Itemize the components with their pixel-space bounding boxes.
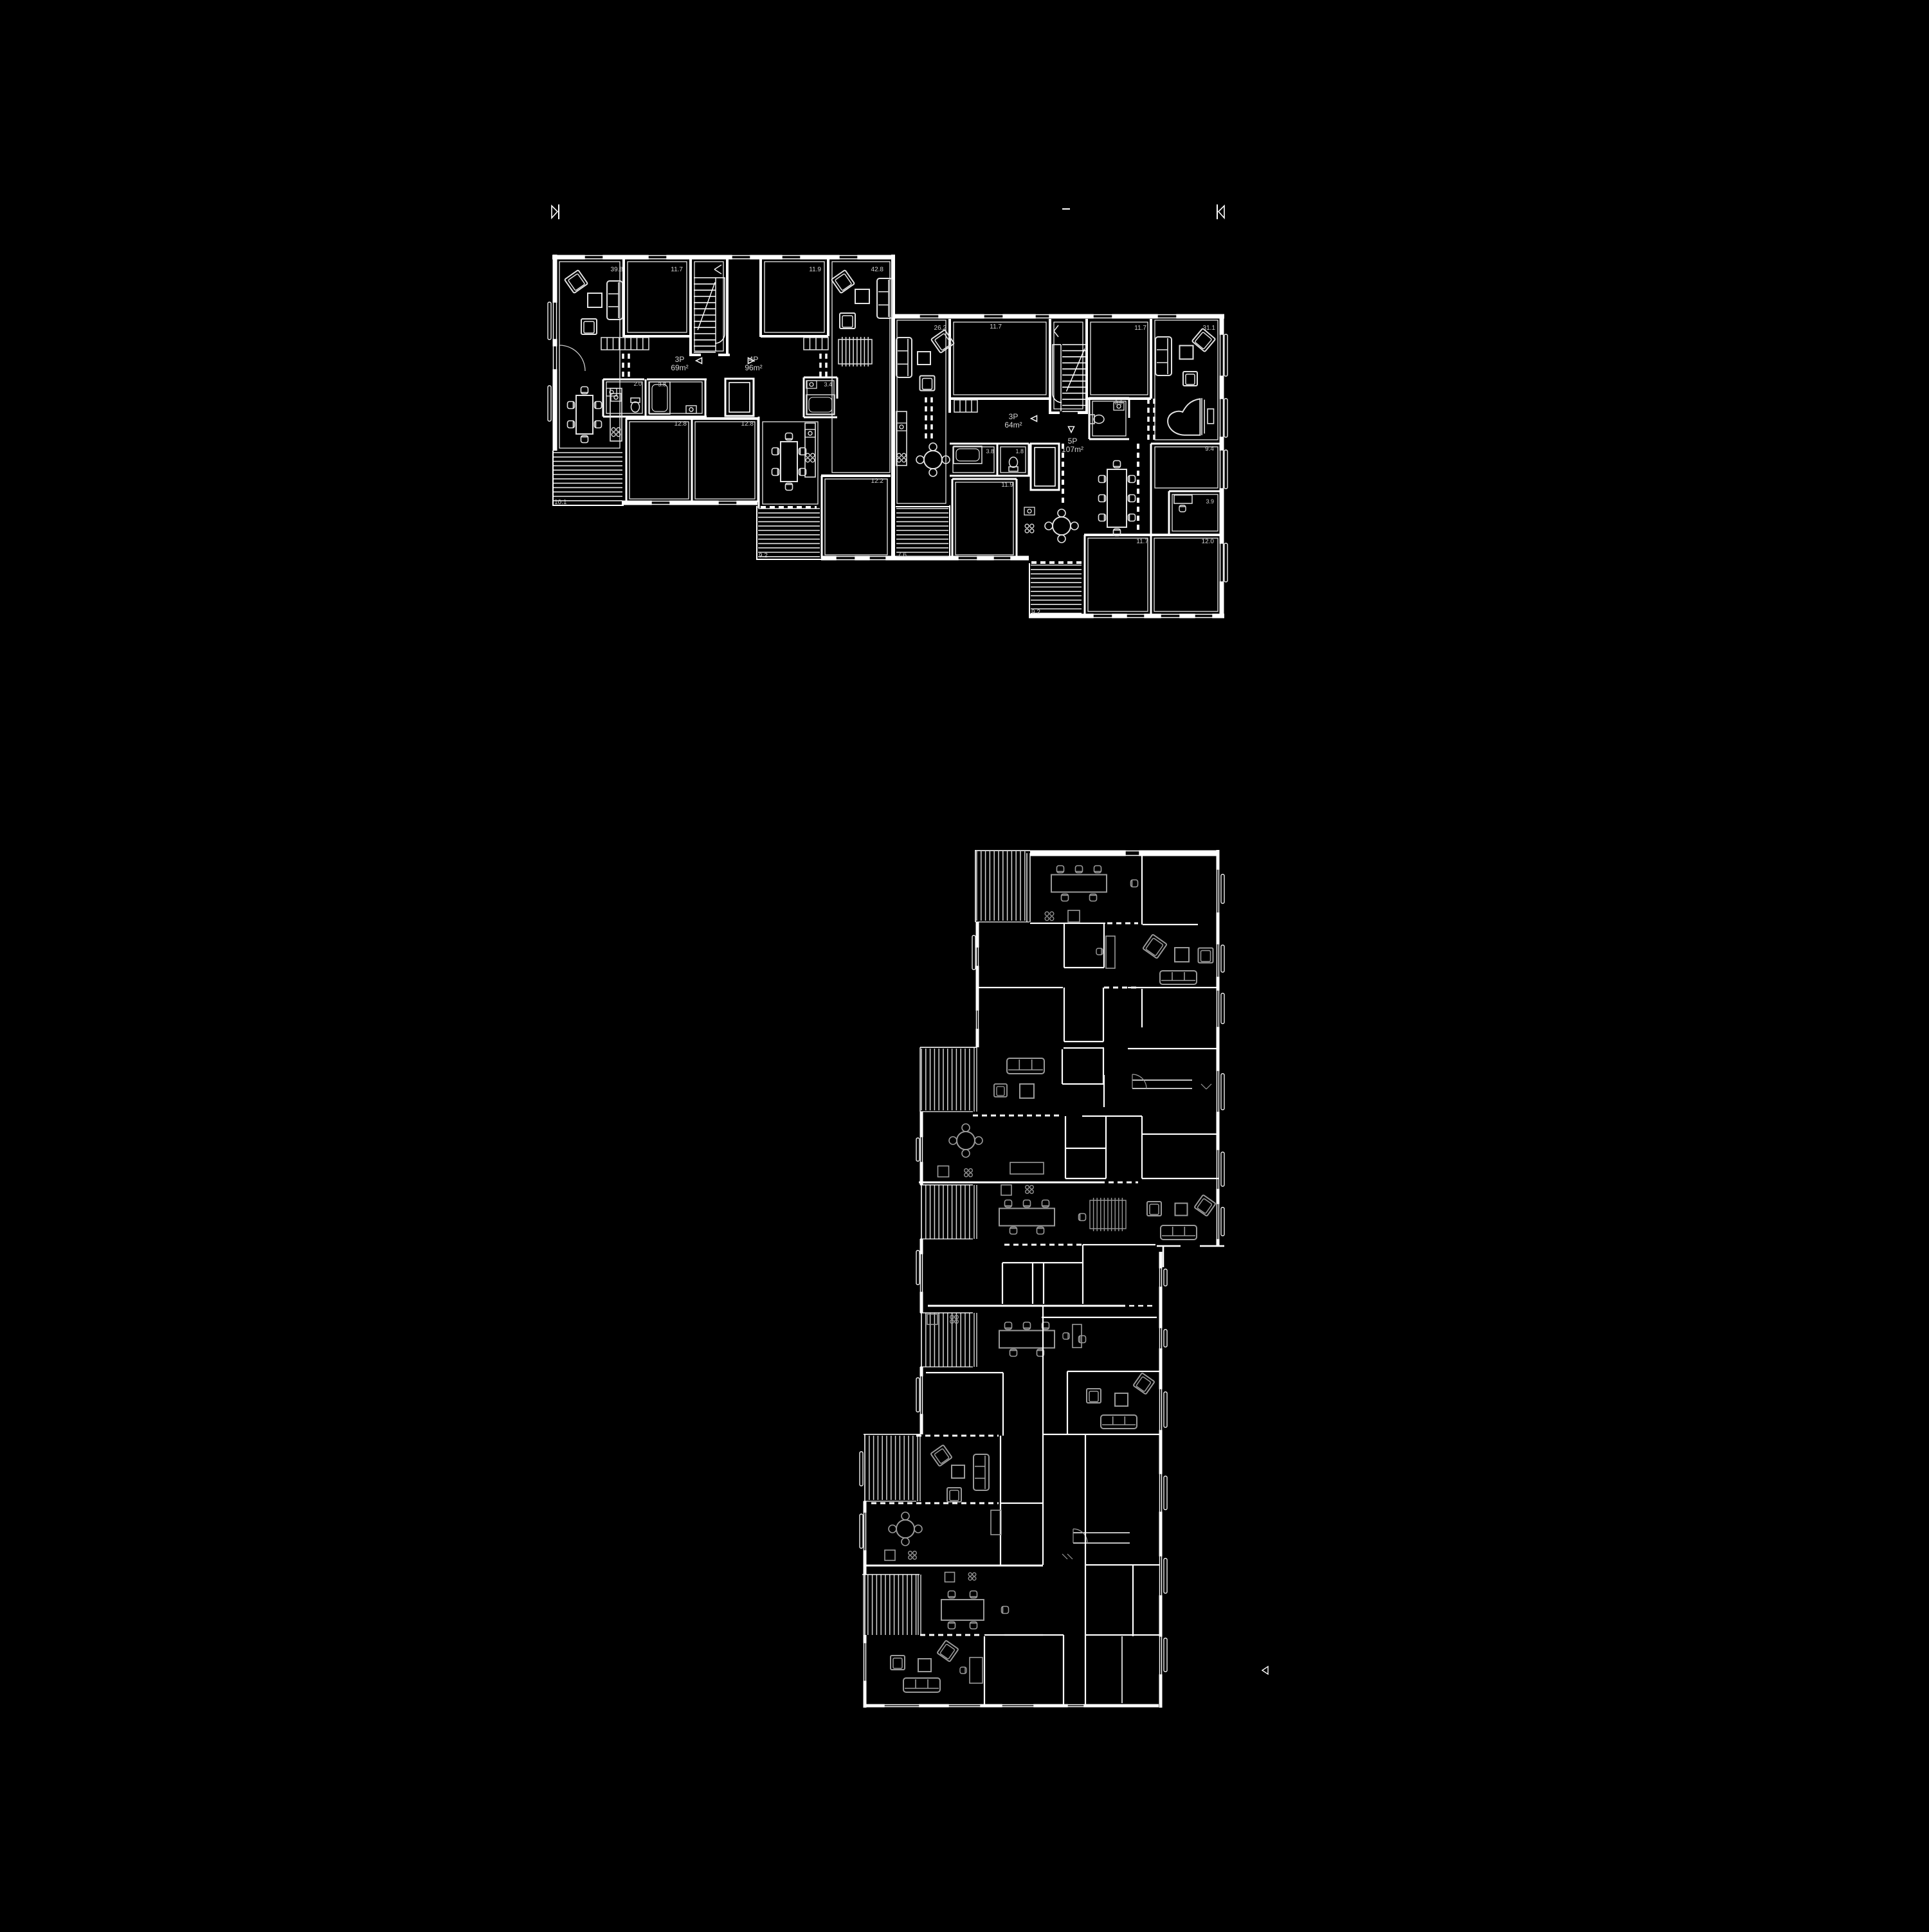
svg-text:26.2: 26.2 [934, 325, 947, 332]
svg-text:9.2: 9.2 [759, 552, 768, 559]
svg-text:11.9: 11.9 [809, 266, 821, 273]
svg-text:10.1: 10.1 [554, 499, 567, 506]
svg-text:3P: 3P [675, 355, 685, 364]
svg-text:31.1: 31.1 [1203, 325, 1216, 332]
svg-text:12.8: 12.8 [675, 420, 687, 428]
svg-text:9.2: 9.2 [1031, 609, 1040, 616]
svg-text:11.7: 11.7 [671, 266, 683, 273]
svg-text:3P: 3P [1009, 412, 1019, 421]
svg-text:5P: 5P [1068, 437, 1078, 446]
svg-text:69m²: 69m² [671, 363, 688, 372]
svg-text:4P: 4P [749, 355, 759, 364]
svg-text:11.9: 11.9 [1001, 482, 1013, 489]
svg-text:2.0: 2.0 [633, 381, 642, 387]
svg-text:3.4: 3.4 [824, 381, 832, 388]
svg-text:42.8: 42.8 [871, 266, 884, 273]
svg-text:11.7: 11.7 [990, 323, 1002, 330]
svg-text:12.8: 12.8 [741, 420, 754, 428]
svg-text:11.7: 11.7 [1134, 325, 1146, 332]
svg-text:3.9: 3.9 [1206, 498, 1214, 505]
svg-text:64m²: 64m² [1004, 420, 1022, 429]
svg-text:7.6: 7.6 [898, 552, 907, 559]
svg-text:96m²: 96m² [745, 363, 762, 372]
svg-text:3.8: 3.8 [986, 448, 994, 455]
svg-text:12.0: 12.0 [1202, 538, 1215, 545]
svg-text:107m²: 107m² [1062, 445, 1083, 454]
svg-text:12.2: 12.2 [871, 478, 884, 485]
svg-text:1.8: 1.8 [1015, 448, 1024, 455]
svg-text:11.7: 11.7 [1136, 538, 1148, 545]
svg-text:39.8: 39.8 [611, 266, 624, 273]
svg-text:9.4: 9.4 [1205, 446, 1214, 453]
